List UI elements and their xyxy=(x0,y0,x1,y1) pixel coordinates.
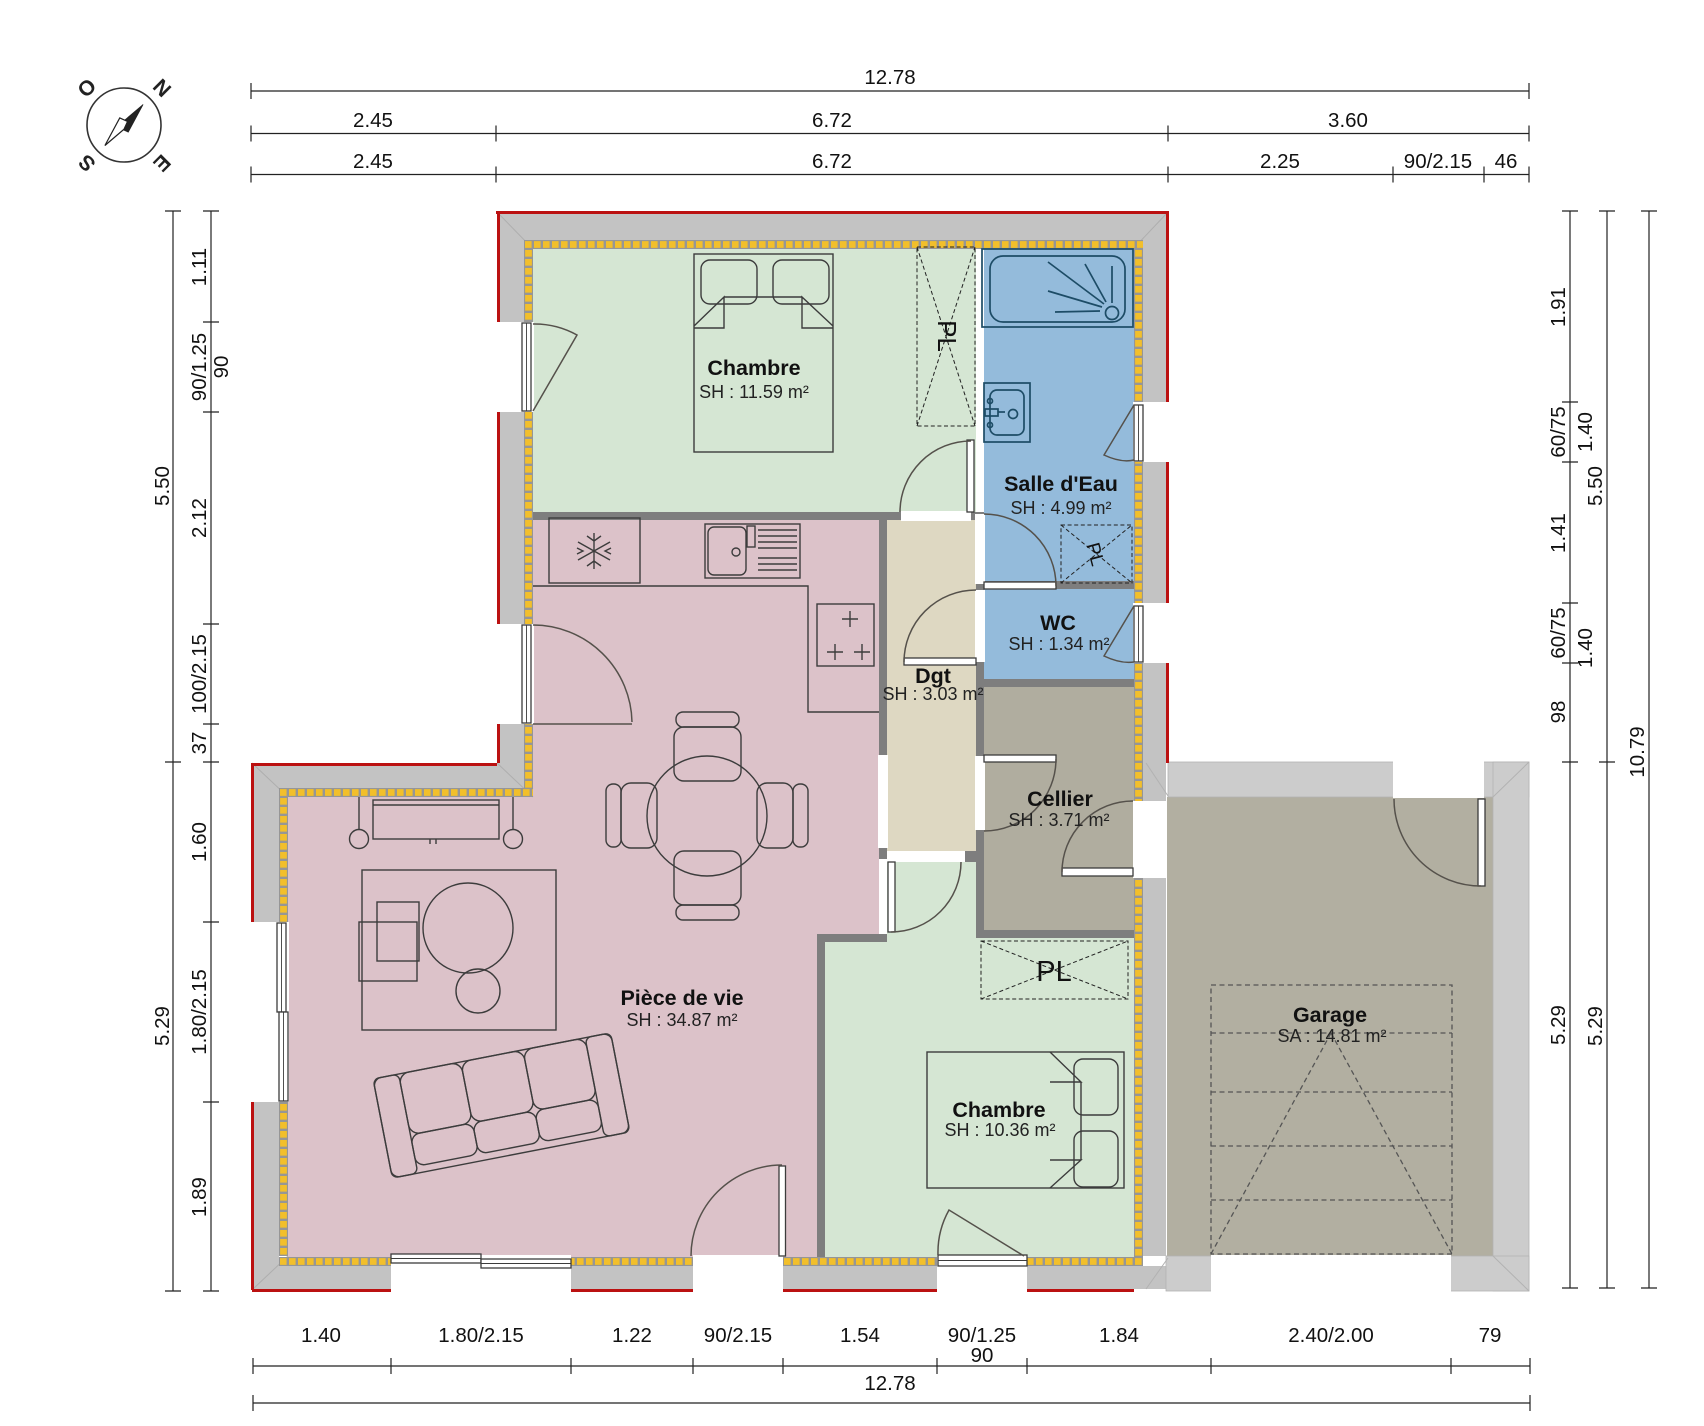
svg-text:1.60: 1.60 xyxy=(188,822,211,862)
svg-text:1.11: 1.11 xyxy=(188,248,211,286)
svg-text:PL: PL xyxy=(1036,956,1071,988)
svg-text:5.50: 5.50 xyxy=(1584,466,1607,506)
svg-text:1.41: 1.41 xyxy=(1547,513,1570,553)
svg-text:SH : 34.87 m²: SH : 34.87 m² xyxy=(626,1010,737,1030)
svg-text:SH : 3.71 m²: SH : 3.71 m² xyxy=(1008,810,1109,830)
svg-text:1.54: 1.54 xyxy=(840,1324,880,1347)
svg-text:100/2.15: 100/2.15 xyxy=(188,634,211,714)
svg-text:PL: PL xyxy=(932,320,962,352)
svg-text:SH : 10.36 m²: SH : 10.36 m² xyxy=(944,1120,1055,1140)
svg-text:90: 90 xyxy=(210,356,233,379)
svg-text:1.22: 1.22 xyxy=(612,1324,652,1347)
svg-text:Chambre: Chambre xyxy=(952,1098,1045,1122)
svg-text:5.29: 5.29 xyxy=(1584,1006,1607,1046)
svg-text:2.25: 2.25 xyxy=(1260,150,1300,173)
svg-text:SH : 4.99 m²: SH : 4.99 m² xyxy=(1010,498,1111,518)
svg-text:SH : 11.59 m²: SH : 11.59 m² xyxy=(699,382,809,402)
svg-text:1.80/2.15: 1.80/2.15 xyxy=(188,969,211,1055)
svg-text:Pièce de vie: Pièce de vie xyxy=(620,986,743,1010)
svg-text:60/75: 60/75 xyxy=(1547,406,1570,457)
svg-text:98: 98 xyxy=(1547,701,1570,724)
svg-text:1.40: 1.40 xyxy=(1574,412,1597,452)
svg-text:6.72: 6.72 xyxy=(812,109,852,132)
svg-text:Chambre: Chambre xyxy=(707,356,800,380)
svg-text:1.80/2.15: 1.80/2.15 xyxy=(438,1324,524,1347)
svg-text:90/2.15: 90/2.15 xyxy=(1404,150,1472,173)
svg-text:2.12: 2.12 xyxy=(188,498,211,538)
svg-text:37: 37 xyxy=(188,732,211,755)
svg-text:60/75: 60/75 xyxy=(1547,607,1570,658)
svg-text:79: 79 xyxy=(1479,1324,1502,1347)
svg-text:1.84: 1.84 xyxy=(1099,1324,1139,1347)
svg-text:90/1.25: 90/1.25 xyxy=(188,333,211,401)
svg-text:12.78: 12.78 xyxy=(864,1372,915,1395)
svg-text:SH : 1.34 m²: SH : 1.34 m² xyxy=(1008,634,1109,654)
svg-text:WC: WC xyxy=(1040,611,1076,635)
svg-text:90: 90 xyxy=(971,1344,994,1367)
svg-text:2.45: 2.45 xyxy=(353,109,393,132)
svg-text:1.89: 1.89 xyxy=(188,1177,211,1217)
svg-text:2.45: 2.45 xyxy=(353,150,393,173)
svg-text:Garage: Garage xyxy=(1293,1003,1367,1027)
svg-text:1.91: 1.91 xyxy=(1547,287,1570,327)
svg-text:6.72: 6.72 xyxy=(812,150,852,173)
svg-text:10.79: 10.79 xyxy=(1626,726,1649,777)
svg-text:Salle d'Eau: Salle d'Eau xyxy=(1004,472,1118,496)
svg-text:5.29: 5.29 xyxy=(151,1006,174,1046)
svg-text:1.40: 1.40 xyxy=(1574,628,1597,668)
svg-text:SH : 3.03 m²: SH : 3.03 m² xyxy=(882,684,983,704)
svg-text:12.78: 12.78 xyxy=(864,66,915,89)
svg-text:46: 46 xyxy=(1495,150,1518,173)
svg-text:90/2.15: 90/2.15 xyxy=(704,1324,772,1347)
svg-text:SA : 14.81 m²: SA : 14.81 m² xyxy=(1277,1026,1386,1046)
svg-text:Cellier: Cellier xyxy=(1027,787,1093,811)
svg-text:5.50: 5.50 xyxy=(151,466,174,506)
svg-text:3.60: 3.60 xyxy=(1328,109,1368,132)
svg-text:2.40/2.00: 2.40/2.00 xyxy=(1288,1324,1374,1347)
svg-text:1.40: 1.40 xyxy=(301,1324,341,1347)
svg-text:5.29: 5.29 xyxy=(1547,1005,1570,1045)
